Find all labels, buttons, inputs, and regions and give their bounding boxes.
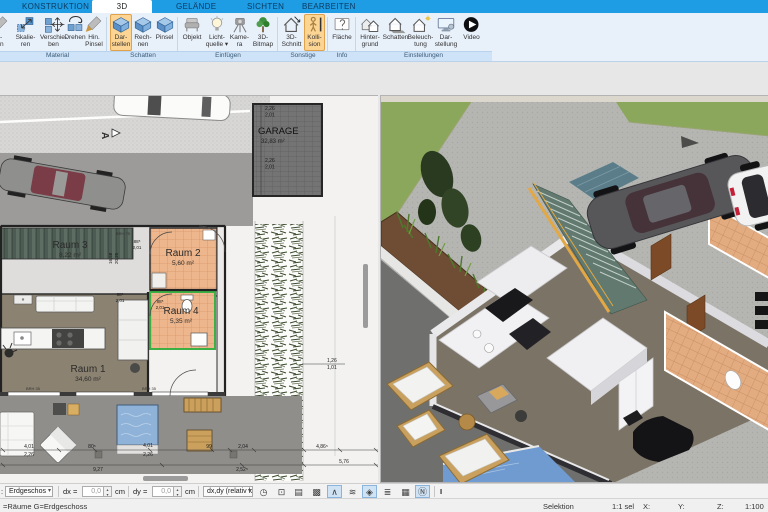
room-raum2[interactable]: Raum 2 5,60 m² [150,228,217,290]
cube-icon [154,15,176,34]
svg-text:5,35 m²: 5,35 m² [170,318,193,325]
ribbon-button-beleuchtung[interactable]: Beleuch-tung [408,15,433,52]
chevron-down-icon: ▾ [48,487,51,496]
button-label: Rech- [134,34,151,41]
group-label-sonstige: Sonstige [279,51,327,61]
ribbon-button-flaeche[interactable]: Fläche [331,15,353,52]
ribbon-button-video[interactable]: Video [460,15,483,52]
person-icon [304,15,326,34]
floorplan-canvas[interactable]: A GARAGE 32,83 m² Raum 3 8,22 m² Raum 2 … [0,96,378,484]
ribbon-button-partial[interactable]: r-en [0,15,9,52]
group-divider [327,17,328,51]
button-label: stellen [112,41,131,48]
button-label: Dar- [435,34,457,41]
ribbon-button-darstellen[interactable]: Dar-stellen [110,14,132,51]
button-label: tung [408,41,434,48]
sofa-plan[interactable] [36,296,94,312]
svg-text:A: A [99,132,110,139]
toolbar-separator [434,486,435,497]
button-label: grund [360,41,380,48]
button-label: Fläche [332,34,352,41]
brush-icon [0,15,11,34]
svg-text:88⁵: 88⁵ [134,239,141,244]
svg-text:5,76: 5,76 [339,459,349,465]
svg-text:2,04: 2,04 [238,444,248,450]
garage-plan[interactable]: GARAGE 32,83 m² [253,104,322,196]
vertical-dimension: 16,5820,25 [108,252,119,264]
floor-select-dropdown[interactable]: Erdgeschos ▾ [5,486,53,497]
house-light-icon [410,15,432,34]
svg-text:34,60 m²: 34,60 m² [75,376,101,383]
status-y-label: Y: [678,502,685,511]
ribbon-button-rechnen[interactable]: Rech-nen [133,15,153,52]
dx-label: dx = [63,487,77,496]
floor-prefix: : [1,487,3,496]
ribbon-button-hintergrund[interactable]: Hinter-grund [358,15,382,52]
svg-text:2,01: 2,01 [156,305,165,310]
tab-sichten[interactable]: SICHTEN [247,0,284,13]
bench-plan[interactable] [184,398,221,412]
svg-text:88⁵: 88⁵ [157,299,164,304]
button-label: Kolli- [307,34,321,41]
svg-text:5,60 m²: 5,60 m² [172,260,195,267]
status-bar: =Räume G=Erdgeschoss Selektion 1:1 sel X… [0,498,768,512]
houses-icon [359,15,381,34]
ribbon-button-3d-bitmap[interactable]: 3D-Bitmap [251,15,275,52]
brush-icon [83,15,105,34]
status-selection-value: 1:1 sel [612,502,634,511]
view-3d-canvas[interactable] [381,96,768,483]
chevron-down-icon: ▾ [248,487,251,496]
dx-spinner[interactable]: ▴▾ [104,486,112,497]
button-label: en [0,41,4,48]
ribbon-button-hin-pinsel[interactable]: Hin.Pinsel [83,15,105,52]
ribbon-tab-strip: KONSTRUKTION 3D GELÄNDE SICHTEN BEARBEIT… [0,0,768,13]
chair-icon [181,15,203,34]
terrain-icon[interactable]: ≋ [345,485,360,498]
svg-text:2,26: 2,26 [265,158,275,164]
bottom-toolbar: : Erdgeschos ▾ dx = 0,0 ▴▾ cm dy = 0,0 ▴… [0,483,768,498]
button-label: Verschie- [40,34,67,41]
group-label-schatten: Schatten [108,51,178,61]
button-label: Bitmap [253,41,273,48]
ribbon-button-pinsel[interactable]: Pinsel [154,15,175,52]
horizon-strip [381,96,768,102]
svg-text:Raum 2: Raum 2 [165,248,200,259]
ribbon-button-skalieren[interactable]: Skalie-ren [12,15,39,52]
cube-icon [132,15,154,34]
printer-icon[interactable]: ▤ [291,485,306,498]
dy-spinner[interactable]: ▴▾ [174,486,182,497]
terrace-side-chairs[interactable] [53,403,79,415]
ribbon-button-kollision[interactable]: Kolli-sion [304,14,325,51]
button-label: Schatten [383,34,409,41]
button-label: 3D- [253,34,273,41]
view-3d-panel[interactable] [380,95,768,483]
materials-icon[interactable]: ▩ [309,485,324,498]
ribbon-button-lichtquelle[interactable]: Licht-quelle ▾ [205,15,229,52]
toolbar-separator [58,486,59,497]
group-label-einstellungen: Einstellungen [357,51,490,61]
button-label: Hin. [85,34,103,41]
svg-text:1,26: 1,26 [327,358,337,364]
button-label: Pinsel [85,41,103,48]
svg-text:BRH 35: BRH 35 [26,386,41,391]
svg-text:Raum 4: Raum 4 [163,306,198,317]
svg-text:BRH 35: BRH 35 [142,386,157,391]
svg-text:2,26: 2,26 [265,106,275,112]
shaft-wall [217,226,225,396]
surface-icon[interactable]: ◈ [362,485,377,498]
spinner-down-icon[interactable]: ▾ [104,492,111,497]
button-label: Kame- [230,34,249,41]
tab-gelaende[interactable]: GELÄNDE [176,0,216,13]
floor-select-value: Erdgeschos [9,488,46,495]
button-label: stellung [435,41,457,48]
svg-text:2,01: 2,01 [116,298,125,303]
group-divider [355,17,356,51]
dx-input[interactable]: 0,0 [82,486,104,497]
svg-text:32,83 m²: 32,83 m² [261,139,285,145]
horizontal-scrollbar[interactable] [143,476,188,481]
button-label: Pinsel [156,34,174,41]
button-label: Schnitt [282,41,302,48]
svg-text:4,01: 4,01 [143,443,153,449]
dy-label: dy = [133,487,147,496]
svg-text:2,01: 2,01 [265,165,275,171]
move-icon [43,15,65,34]
group-label-material: Material [10,51,105,61]
dx-unit: cm [115,487,125,496]
svg-text:88⁵: 88⁵ [117,292,124,297]
button-label: ben [40,41,67,48]
house-shadow-icon [385,15,407,34]
utility-box [95,451,102,458]
svg-text:4,86⁵: 4,86⁵ [316,444,328,450]
status-z-label: Z: [717,502,724,511]
svg-text:GARAGE: GARAGE [258,126,299,137]
svg-text:4,01: 4,01 [24,444,34,450]
north-compass-icon[interactable]: Ⓝ [415,485,430,498]
sideboard-plan[interactable] [14,295,32,304]
camera-tripod-icon [229,15,251,34]
utility-box [230,451,237,458]
scale-icon [15,15,37,34]
svg-text:80⁵: 80⁵ [88,444,96,450]
area-info-icon [331,15,353,34]
right-wall-windows-3d [755,292,768,329]
tree-icon [252,15,274,34]
group-label-info: Info [329,51,355,61]
button-label: ra [230,41,249,48]
dy-unit: cm [185,487,195,496]
button-label: sion [307,41,321,48]
layers-icon[interactable]: ≣ [380,485,395,498]
svg-text:99: 99 [206,444,212,450]
svg-text:20,25: 20,25 [114,252,119,264]
spinner-down-icon[interactable]: ▾ [174,492,181,497]
group-divider [277,17,278,51]
status-x-label: X: [643,502,650,511]
status-scale: 1:100 [745,502,764,511]
group-divider [177,17,178,51]
status-selection-label: Selektion [543,502,574,511]
side-table-3d[interactable] [459,414,475,430]
stool-3d[interactable] [515,410,527,422]
play-video-icon [461,15,483,34]
floorplan-2d-panel[interactable]: A GARAGE 32,83 m² Raum 3 8,22 m² Raum 2 … [0,95,378,483]
tab-bearbeiten[interactable]: BEARBEITEN [302,0,356,13]
ribbon-button-kamera[interactable]: Kame-ra [229,15,250,52]
tab-3d[interactable]: 3D [92,0,152,13]
ribbon-button-objekt[interactable]: Objekt [181,15,203,52]
ribbon-button-darstellung[interactable]: Dar-stellung [433,15,459,52]
cube-icon [110,15,132,34]
button-label: Dar- [112,34,131,41]
status-left-text: =Räume G=Erdgeschoss [3,502,87,511]
kitchen-counter-plan[interactable] [1,328,105,349]
svg-text:9,27: 9,27 [93,467,103,473]
monitor-icon[interactable]: ⊡ [274,485,289,498]
vertical-scrollbar[interactable] [363,264,368,328]
button-label: Objekt [183,34,202,41]
ribbon-button-3d-schnitt[interactable]: 3D-Schnitt [280,15,303,52]
svg-text:8,22 m²: 8,22 m² [59,252,82,259]
mode-select-value: dx,dy (relativ ka [207,488,253,495]
svg-text:2,01: 2,01 [265,113,275,119]
dy-input[interactable]: 0,0 [152,486,174,497]
svg-text:16,58: 16,58 [108,252,113,264]
svg-text:2,52⁵: 2,52⁵ [236,467,248,473]
button-label: nen [134,41,151,48]
toolbar-separator [128,486,129,497]
tab-konstruktion[interactable]: KONSTRUKTION [22,0,89,13]
button-label: r- [0,34,4,41]
mode-select-dropdown[interactable]: dx,dy (relativ ka ▾ [203,486,253,497]
clock-icon[interactable]: ◷ [256,485,271,498]
roof-angle-icon[interactable]: ∧ [327,485,342,498]
svg-text:2,26: 2,26 [143,452,153,458]
svg-text:1,01: 1,01 [327,365,337,371]
button-label: Beleuch- [408,34,434,41]
svg-text:Raum 1: Raum 1 [70,364,105,375]
bulb-icon [206,15,228,34]
button-label: ren [16,41,36,48]
ribbon: r-en Skalie-ren Verschie-ben Drehen Hin.… [0,13,768,62]
toolbar-separator [198,486,199,497]
button-label: quelle ▾ [206,41,228,48]
group-divider [106,17,107,51]
svg-text:2,26: 2,26 [24,452,34,458]
display-gear-icon [435,15,457,34]
group-label-einfuegen: Einfügen [179,51,277,61]
button-label: Video [463,34,480,41]
svg-text:BRH 75: BRH 75 [116,231,131,236]
svg-text:2,01: 2,01 [133,245,142,250]
ribbon-button-schatten[interactable]: Schatten [383,15,408,52]
button-label: Hinter- [360,34,380,41]
button-label: Licht- [206,34,228,41]
svg-text:Raum 3: Raum 3 [52,240,87,251]
house-cut-icon [281,15,303,34]
button-label: 3D- [282,34,302,41]
grid-icon[interactable]: ▦ [398,485,413,498]
button-label: Skalie- [16,34,36,41]
cursor-icon[interactable]: I [440,487,442,496]
